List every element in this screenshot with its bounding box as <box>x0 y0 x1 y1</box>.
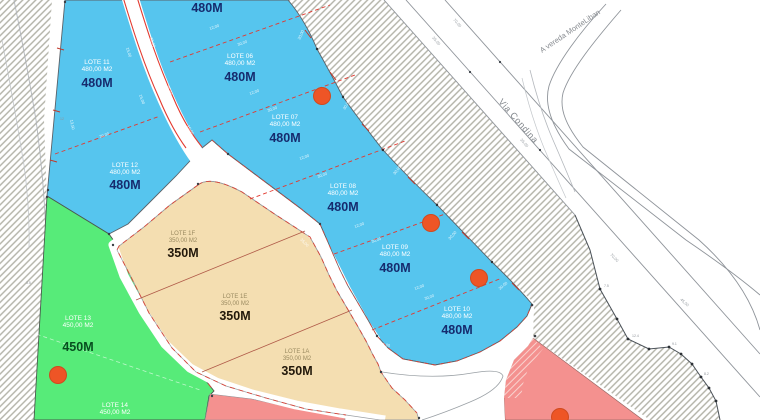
svg-text:LOTE 14: LOTE 14 <box>102 402 128 409</box>
svg-text:480M: 480M <box>379 261 410 275</box>
svg-text:480M: 480M <box>441 323 472 337</box>
svg-text:3.5: 3.5 <box>26 281 31 285</box>
svg-text:450,00 M2: 450,00 M2 <box>63 322 94 329</box>
svg-text:480M: 480M <box>81 76 112 90</box>
svg-text:LOTE 1A: LOTE 1A <box>285 349 310 355</box>
svg-text:480M: 480M <box>224 70 255 84</box>
svg-text:480M: 480M <box>327 200 358 214</box>
svg-text:350M: 350M <box>281 364 312 378</box>
svg-text:480,00 M2: 480,00 M2 <box>442 313 473 320</box>
svg-text:LOTE 08: LOTE 08 <box>330 183 356 190</box>
svg-text:480M: 480M <box>109 178 140 192</box>
svg-text:350,00 M2: 350,00 M2 <box>283 356 312 362</box>
svg-text:7.5: 7.5 <box>604 284 609 288</box>
svg-text:LOTE 13: LOTE 13 <box>65 315 91 322</box>
svg-text:LOTE 1F: LOTE 1F <box>171 231 196 237</box>
svg-text:450M: 450M <box>62 340 93 354</box>
svg-text:LOTE 06: LOTE 06 <box>227 53 253 60</box>
svg-text:8.2: 8.2 <box>704 372 709 376</box>
svg-text:480M: 480M <box>191 1 222 15</box>
svg-text:480,00 M2: 480,00 M2 <box>225 60 256 67</box>
svg-text:LOTE 10: LOTE 10 <box>444 306 470 313</box>
svg-text:9.1: 9.1 <box>672 342 677 346</box>
svg-text:480,00 M2: 480,00 M2 <box>328 190 359 197</box>
svg-text:480,00 M2: 480,00 M2 <box>380 251 411 258</box>
svg-text:LOTE 1E: LOTE 1E <box>223 294 248 300</box>
svg-text:350,00 M2: 350,00 M2 <box>169 238 198 244</box>
svg-text:350M: 350M <box>167 246 198 260</box>
svg-text:350M: 350M <box>219 309 250 323</box>
svg-text:480M: 480M <box>269 131 300 145</box>
svg-text:450,00 M2: 450,00 M2 <box>100 409 131 416</box>
svg-text:480,00 M2: 480,00 M2 <box>82 66 113 73</box>
svg-text:480,00 M2: 480,00 M2 <box>270 121 301 128</box>
svg-text:LOTE 11: LOTE 11 <box>84 59 110 66</box>
svg-text:350,00 M2: 350,00 M2 <box>221 301 250 307</box>
svg-text:LOTE 07: LOTE 07 <box>272 114 298 121</box>
svg-text:480,00 M2: 480,00 M2 <box>110 169 141 176</box>
svg-text:LOTE 12: LOTE 12 <box>112 162 138 169</box>
svg-text:12: 12 <box>60 117 64 121</box>
svg-text:LOTE 09: LOTE 09 <box>382 244 408 251</box>
svg-text:12.4: 12.4 <box>632 334 639 338</box>
